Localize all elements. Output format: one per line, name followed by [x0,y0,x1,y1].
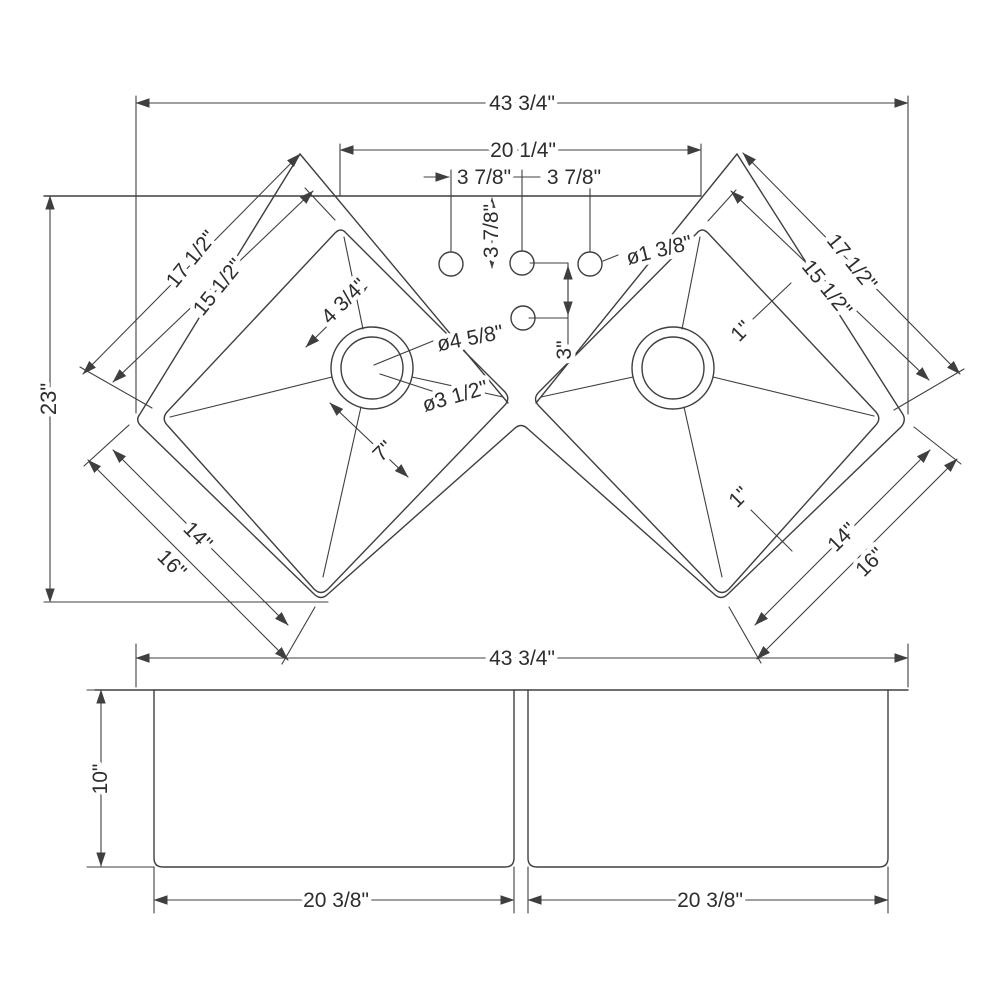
sink-technical-drawing: 43 3/4" 20 1/4" 23" 3 7/8" 3 7/8" 3 7/8" [0,0,1000,1000]
dim-drain-front: 7" [330,403,408,477]
drawing-canvas: 43 3/4" 20 1/4" 23" 3 7/8" 3 7/8" 3 7/8" [0,0,1000,1000]
dim-label-drain-diag: 4 3/4" [317,274,372,329]
dim-label-overall-width-top: 43 3/4" [489,92,555,115]
dim-label-faucet-hole-dia: ø1 3/8" [624,231,695,270]
faucet-holes [439,170,602,330]
dim-left-inner-edge: 15 1/2" [113,188,335,382]
dim-label-drain-front: 7" [368,436,398,466]
dim-label-left-bowl-width: 20 3/8" [303,889,369,912]
dim-front-overall-width: 43 3/4" [136,644,908,687]
dim-label-faucet-drop: 3" [553,340,576,359]
dim-label-bowl-depth: 10" [89,764,112,795]
dim-left-outer-edge: 17 1/2" [80,154,300,408]
dim-label-left-bottom-inner: 14" [179,517,217,555]
plan-view: 43 3/4" 20 1/4" 23" 3 7/8" 3 7/8" 3 7/8" [36,92,964,664]
dim-flange-bottom: 1" [724,482,792,551]
dim-label-bowl-span: 20 1/4" [490,139,556,162]
dim-right-bowl-width: 20 3/8" [528,867,888,913]
dim-bowl-span: 20 1/4" [340,139,701,196]
dim-label-depth: 23" [36,383,61,415]
dim-label-flange-top: 1" [726,316,756,346]
dim-faucet-setback: 3 7/8" [480,198,503,268]
dim-label-right-bowl-width: 20 3/8" [677,889,743,912]
dim-bowl-depth: 10" [87,690,154,867]
dim-label-drain-outer-dia: ø4 5/8" [435,321,505,356]
plan-outer-outline [44,154,904,598]
front-left-bowl [154,690,514,867]
dim-label-overall-width-bottom: 43 3/4" [489,647,555,670]
dim-left-bottom-inner: 14" [113,450,288,625]
dim-flange-top: 1" [726,283,791,346]
dim-right-outer-edge: 17 1/2" [743,153,964,410]
dim-right-bottom-inner: 14" [755,450,930,625]
dim-label-right-bottom-outer: 16" [851,543,889,581]
dim-label-flange-bottom: 1" [724,482,754,512]
dim-label-drain-inner-dia: ø3 1/2" [420,376,491,417]
dim-faucet-drop: 3" [529,263,576,360]
dim-drain-inner-dia: ø3 1/2" [380,374,491,417]
dim-label-left-bottom-outer: 16" [153,545,191,583]
right-drain [632,327,714,409]
front-outline [95,690,908,867]
dim-label-faucet-setback: 3 7/8" [480,204,503,258]
left-drain [331,327,413,409]
dim-drain-diag: 4 3/4" [306,274,372,347]
dim-label-faucet-spacing-left: 3 7/8" [457,166,511,189]
dim-faucet-hole-dia: ø1 3/8" [603,231,694,270]
dim-label-faucet-spacing-right: 3 7/8" [547,166,601,189]
front-right-bowl [528,690,888,867]
bowl-crease-lines [170,237,874,577]
front-view: 43 3/4" 10" 20 3/8" 20 3/8" [87,644,908,913]
dim-left-bowl-width: 20 3/8" [154,867,514,913]
